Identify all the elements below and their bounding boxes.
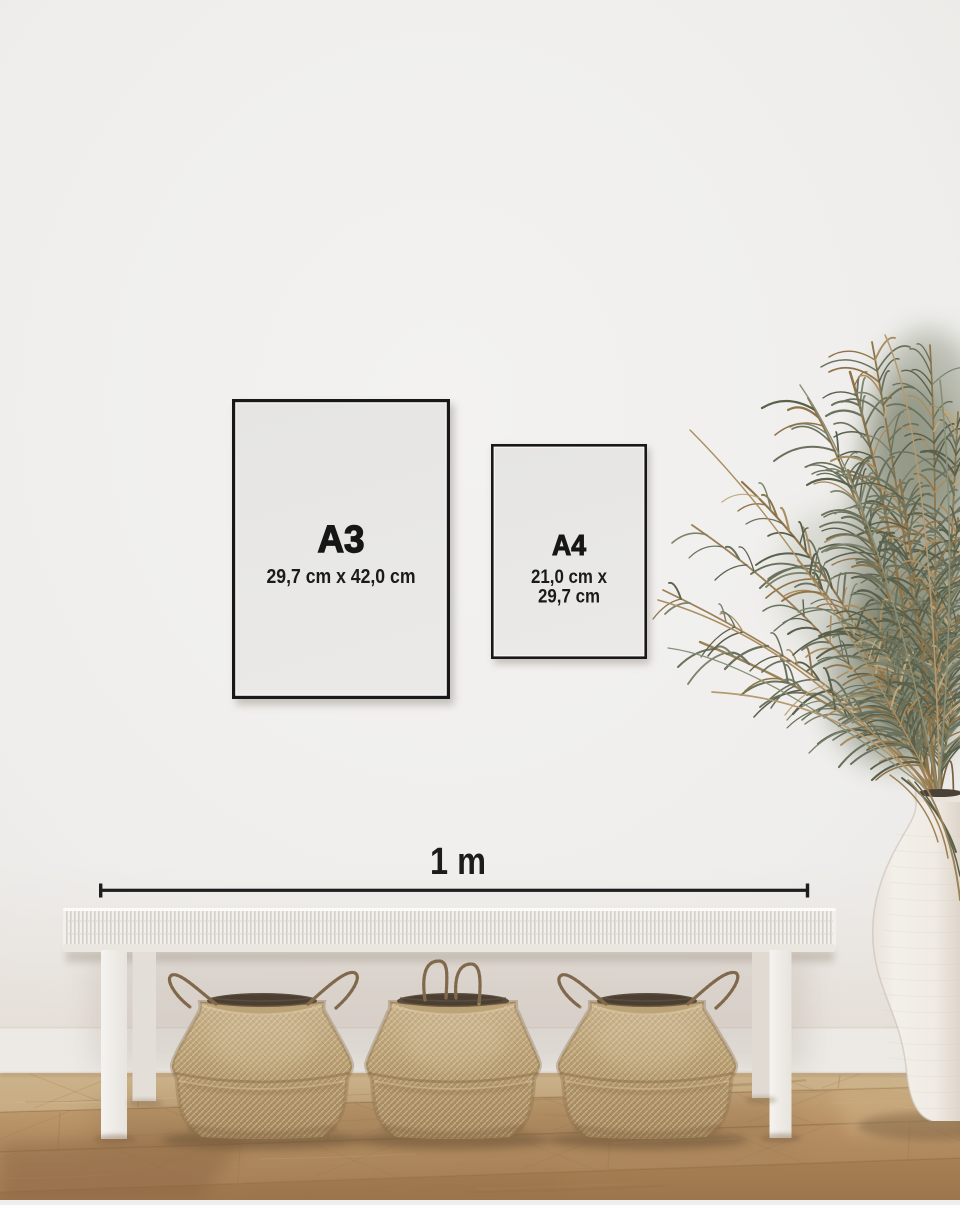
svg-text:29,7 cm: 29,7 cm: [538, 587, 600, 608]
svg-text:A4: A4: [552, 530, 586, 562]
svg-text:29,7 cm x 42,0 cm: 29,7 cm x 42,0 cm: [267, 566, 416, 588]
svg-text:1 m: 1 m: [430, 841, 486, 883]
svg-text:21,0 cm x: 21,0 cm x: [531, 567, 607, 588]
svg-text:A3: A3: [318, 519, 365, 561]
